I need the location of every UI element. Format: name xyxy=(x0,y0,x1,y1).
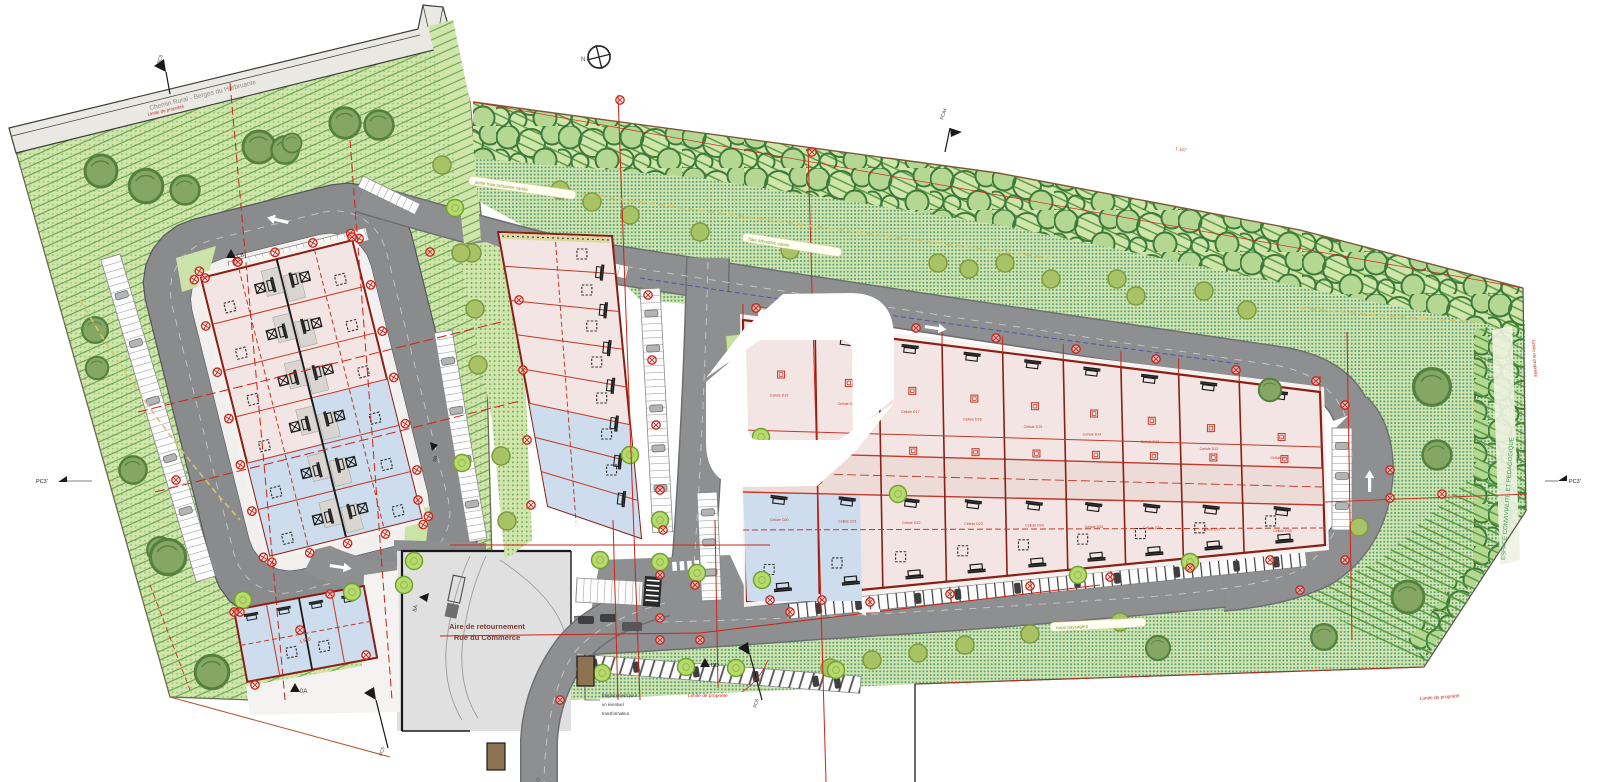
svg-text:Emplacement pour: Emplacement pour xyxy=(602,693,638,698)
svg-text:Cellule D21: Cellule D21 xyxy=(838,519,857,523)
svg-text:transformateur: transformateur xyxy=(602,711,630,716)
svg-text:Cellule D27: Cellule D27 xyxy=(1202,527,1221,531)
svg-text:Cellule D26: Cellule D26 xyxy=(1143,526,1162,530)
svg-text:Cellule D22: Cellule D22 xyxy=(902,521,921,525)
svg-text:Cellule D15: Cellule D15 xyxy=(1024,425,1043,429)
svg-text:Limite de propriété: Limite de propriété xyxy=(688,693,728,699)
svg-text:Cellule D11: Cellule D11 xyxy=(1270,456,1288,460)
svg-text:Cellule D17: Cellule D17 xyxy=(901,410,920,414)
svg-text:Rue du Commerce: Rue du Commerce xyxy=(454,633,520,642)
svg-text:PC3': PC3' xyxy=(1569,479,1581,485)
svg-text:0A: 0A xyxy=(300,689,307,695)
svg-text:Cellule D28: Cellule D28 xyxy=(1273,529,1292,533)
svg-text:Cellule D14: Cellule D14 xyxy=(1083,433,1102,437)
svg-text:Aire de retournement: Aire de retournement xyxy=(449,622,525,631)
svg-text:un éventuel: un éventuel xyxy=(602,702,624,707)
svg-text:DD: DD xyxy=(711,663,719,669)
svg-text:Cellule D23: Cellule D23 xyxy=(964,522,983,526)
svg-text:PC3': PC3' xyxy=(36,479,48,485)
svg-text:N: N xyxy=(581,57,585,63)
svg-text:Cellule D13: Cellule D13 xyxy=(1141,440,1160,444)
svg-text:Cellule D19: Cellule D19 xyxy=(770,394,789,398)
svg-text:Cellule D12: Cellule D12 xyxy=(1200,447,1219,451)
svg-text:Cellule D20: Cellule D20 xyxy=(770,518,789,522)
svg-text:Cellule D24: Cellule D24 xyxy=(1025,524,1044,528)
svg-text:Cellule D16: Cellule D16 xyxy=(963,418,982,422)
svg-text:Cellule D25: Cellule D25 xyxy=(1085,525,1104,529)
